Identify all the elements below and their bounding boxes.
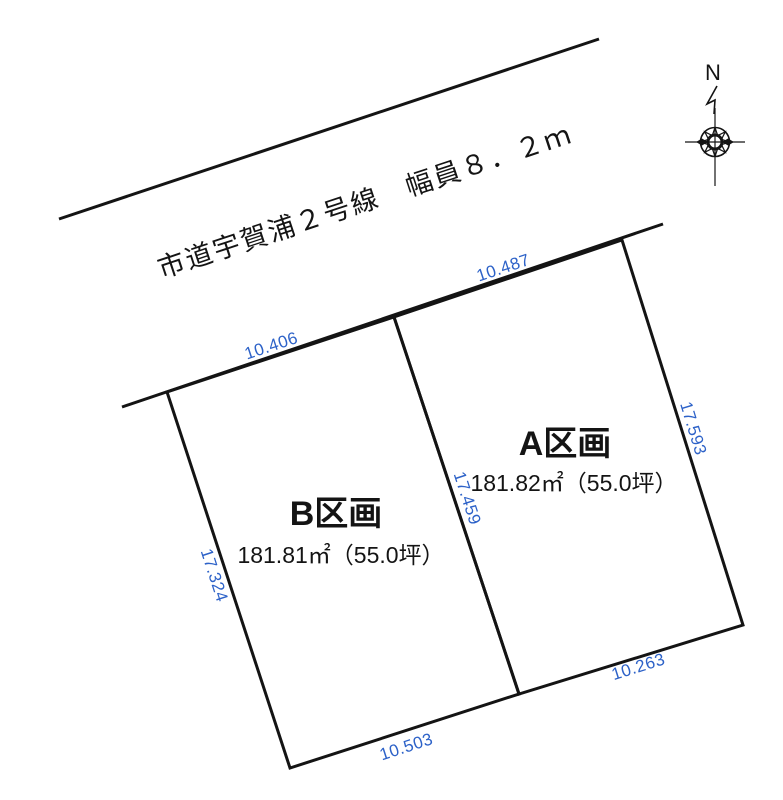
plot-b: B区画 181.81㎡（55.0坪） [167, 317, 519, 768]
dim-plot-a-bottom-edge: 10.263 [609, 649, 667, 684]
plot-a-area: 181.82㎡（55.0坪） [470, 470, 677, 496]
road-upper-edge-line [59, 39, 599, 219]
plot-a: A区画 181.82㎡（55.0坪） [394, 240, 743, 694]
plot-a-name: A区画 [519, 425, 612, 463]
road: 市道宇賀浦２号線 幅員８．２ｍ [59, 39, 663, 407]
land-subdivision-plan: 市道宇賀浦２号線 幅員８．２ｍ N B区画 181.81㎡（55.0坪） A区画… [0, 0, 783, 800]
plot-b-area: 181.81㎡（55.0坪） [237, 542, 444, 568]
north-indicator: N [685, 60, 745, 186]
plot-b-name: B区画 [290, 495, 383, 533]
site-plan-drawing: 市道宇賀浦２号線 幅員８．２ｍ N B区画 181.81㎡（55.0坪） A区画… [0, 0, 783, 800]
north-label: N [705, 60, 721, 85]
dimension-labels: 10.406 10.487 17.324 17.459 17.593 10.50… [197, 250, 711, 764]
dim-plot-b-bottom-edge: 10.503 [377, 729, 435, 764]
plot-a-boundary [394, 240, 743, 694]
